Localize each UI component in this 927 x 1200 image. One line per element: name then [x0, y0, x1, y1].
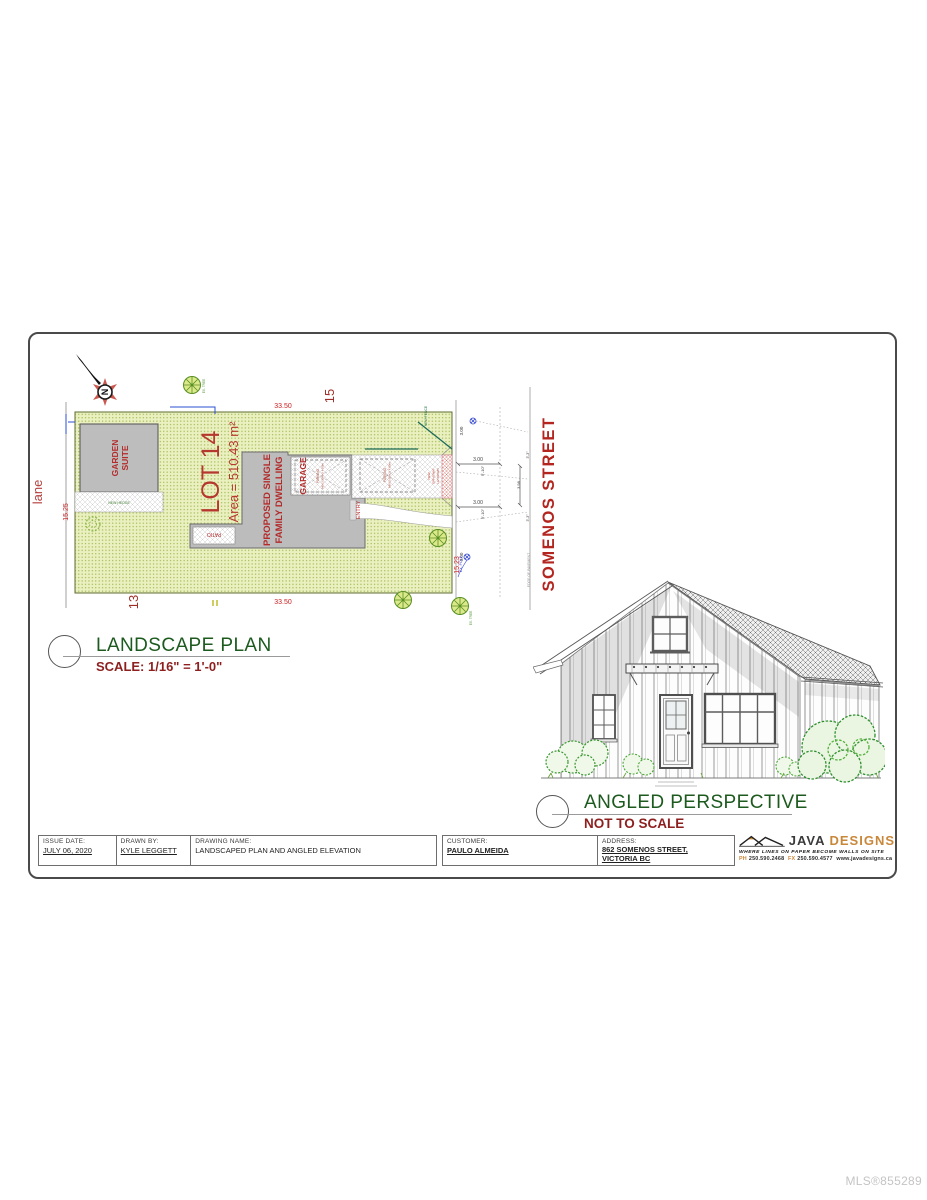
street-dim: 3.00 — [459, 426, 464, 435]
lot-area: Area = 510.43 m² — [226, 421, 241, 522]
grass-marks — [213, 600, 217, 606]
phone-number: 250.590.2468 — [749, 856, 784, 862]
parking-note: PARKING — [316, 468, 320, 483]
left-eave-overhang — [533, 660, 563, 673]
driveway-letdown — [442, 455, 452, 498]
survey-mark-icon — [66, 414, 75, 434]
street-dim: 3'-3" — [526, 514, 530, 522]
logo-designs-text: DESIGNS — [829, 833, 895, 848]
lot-north-label: 15 — [322, 389, 337, 403]
lot-number: LOT 14 — [197, 430, 225, 513]
issue-date-value: JULY 06, 2020 — [43, 846, 112, 855]
letdown-note: DRIVEWAY — [432, 468, 436, 484]
title-block-left: ISSUE DATE: JULY 06, 2020 DRAWN BY: KYLE… — [38, 835, 437, 866]
logo-java-text: JAVA — [789, 833, 826, 848]
tree-icon — [184, 377, 201, 394]
mls-watermark: MLS®855289 — [845, 1174, 922, 1188]
address-line1: 862 SOMENOS STREET, — [602, 845, 730, 854]
drawing-name-cell: DRAWING NAME: LANDSCAPED PLAN AND ANGLED… — [190, 836, 436, 865]
customer-value: PAULO ALMEIDA — [447, 846, 593, 855]
garage-label: GARAGE — [298, 457, 308, 495]
landscape-plan-drawing: N 33.50 33.50 15.25 15.23 lane 15 13 SOM… — [30, 352, 575, 642]
angled-perspective-drawing — [533, 565, 885, 795]
plan-reference-bubble — [48, 635, 81, 668]
gable-window — [650, 617, 690, 653]
address-cell: ADDRESS: 862 SOMENOS STREET, VICTORIA BC — [597, 836, 734, 865]
dimension-lines — [456, 462, 522, 509]
tree-icon — [452, 598, 469, 615]
address-line2: VICTORIA BC — [602, 854, 730, 863]
issue-date-label: ISSUE DATE: — [43, 838, 112, 845]
drawn-by-value: KYLE LEGGETT — [121, 846, 187, 855]
parking-note: MIN 2.60m X 4.80m — [321, 463, 325, 489]
drawing-name-label: DRAWING NAME: — [195, 838, 432, 845]
garden-suite-label: GARDEN — [110, 440, 120, 477]
hedge-label: NEW HEDGE — [108, 501, 130, 505]
drawn-by-label: DRAWN BY: — [121, 838, 187, 845]
street-dim: 3'-3" — [526, 451, 530, 459]
street-dim: 3.00 — [473, 457, 483, 463]
entry-door — [660, 695, 692, 768]
customer-cell: CUSTOMER: PAULO ALMEIDA — [443, 836, 597, 865]
dwelling-label: FAMILY DWELLING — [274, 456, 285, 543]
drawing-name-value: LANDSCAPED PLAN AND ANGLED ELEVATION — [195, 846, 432, 855]
logo-tagline: WHERE LINES ON PAPER BECOME WALLS ON SIT… — [739, 850, 895, 855]
customer-label: CUSTOMER: — [447, 838, 593, 845]
logo-contact: PH250.590.2468 FX250.590.4577 www.javade… — [739, 856, 895, 862]
drawn-by-cell: DRAWN BY: KYLE LEGGETT — [116, 836, 191, 865]
letdown-note: NEW — [427, 472, 431, 479]
plan-title: LANDSCAPE PLAN — [96, 635, 272, 657]
side-window — [591, 695, 617, 742]
dwelling-label: PROPOSED SINGLE — [262, 454, 273, 546]
lot-south-label: 13 — [126, 595, 141, 609]
perspective-reference-bubble — [536, 795, 569, 828]
parking-note: PARKING — [383, 467, 387, 482]
tree-icon — [395, 592, 412, 609]
perspective-scale-note: NOT TO SCALE — [584, 816, 684, 831]
page: { "page": { "watermark": "MLS®855289" },… — [0, 0, 927, 1200]
mountains-logo-icon — [739, 834, 785, 848]
java-designs-logo: JAVA DESIGNS WHERE LINES ON PAPER BECOME… — [739, 834, 895, 862]
title-block-right: CUSTOMER: PAULO ALMEIDA ADDRESS: 862 SOM… — [442, 835, 735, 866]
street-dim: 3.00 — [473, 500, 483, 506]
tree-label: EX. TREE — [202, 379, 206, 393]
plan-scale-note: SCALE: 1/16" = 1'-0" — [96, 659, 222, 674]
issue-date-cell: ISSUE DATE: JULY 06, 2020 — [39, 836, 116, 865]
entry-label: ENTRY — [356, 500, 362, 519]
tree-label: EX. TREE — [469, 611, 473, 625]
dim-west: 15.25 — [63, 503, 70, 521]
street-dim: 3.00 — [459, 552, 464, 561]
street-dim: 3.98 — [516, 480, 521, 489]
dim-bottom: 33.50 — [274, 599, 292, 606]
address-label: ADDRESS: — [602, 838, 730, 845]
website: www.javadesigns.ca — [836, 856, 892, 862]
north-label: N — [100, 389, 110, 396]
fax-number: 250.590.4577 — [797, 856, 832, 862]
fax-label: FX — [788, 856, 795, 862]
front-window — [702, 694, 778, 748]
street-dim: 9'-10" — [480, 508, 485, 519]
perspective-title: ANGLED PERSPECTIVE — [584, 792, 808, 814]
tree-icon — [430, 530, 447, 547]
pavement-edge-label: EDGE OF PAVEMENT — [527, 553, 531, 587]
phone-label: PH — [739, 856, 747, 862]
lane-label: lane — [30, 480, 45, 505]
garden-suite-label: SUITE — [120, 445, 130, 470]
patio-label: PATIO — [207, 531, 221, 537]
perspective-title-underline — [552, 814, 792, 815]
fence-label: NEW FENCE — [424, 405, 428, 426]
north-arrow-icon: N — [76, 354, 117, 406]
street-dim: 9'-10" — [480, 465, 485, 476]
walkway-lines — [655, 782, 697, 786]
letdown-note: LETDOWN — [436, 469, 440, 484]
dim-top: 33.50 — [274, 403, 292, 410]
parking-note: MIN 2.60m X 4.80m — [388, 462, 392, 488]
